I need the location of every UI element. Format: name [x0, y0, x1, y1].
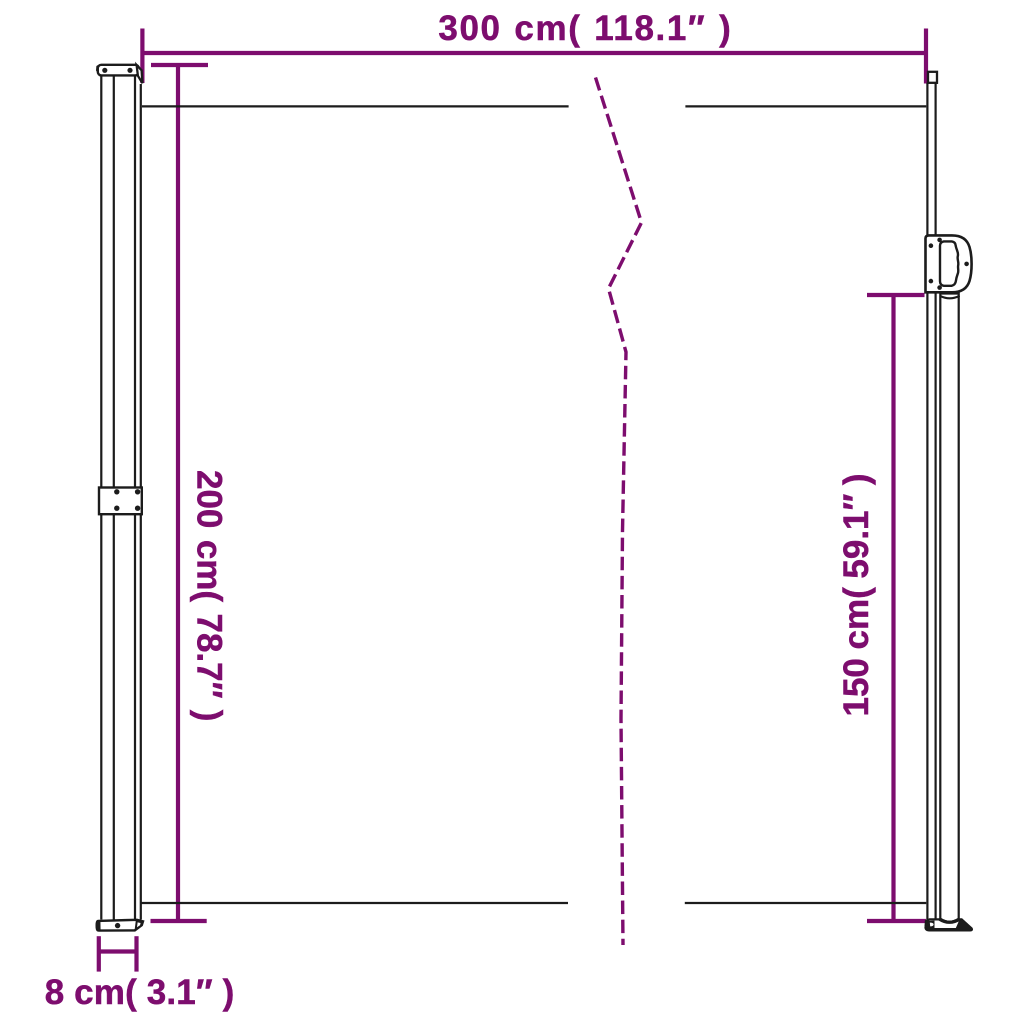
- svg-text:300 cm( 118.1″ ): 300 cm( 118.1″ ): [438, 9, 732, 48]
- svg-text:8 cm( 3.1″ ): 8 cm( 3.1″ ): [45, 973, 235, 1012]
- svg-text:150 cm( 59.1″ ): 150 cm( 59.1″ ): [837, 473, 876, 716]
- svg-text:200 cm( 78.7″ ): 200 cm( 78.7″ ): [189, 470, 228, 721]
